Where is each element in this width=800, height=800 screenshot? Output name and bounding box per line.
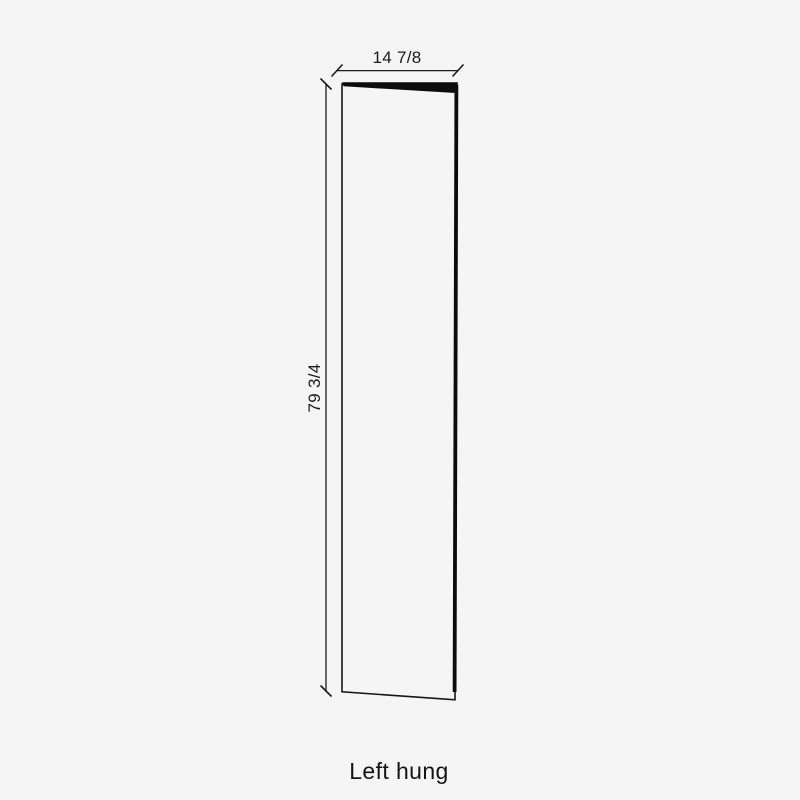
diagram-caption: Left hung: [349, 758, 449, 784]
door-face: [342, 84, 457, 700]
door-elevation-diagram: 14 7/8 79 3/4 Left hung: [0, 0, 800, 800]
door-hinge-free-edge: [455, 85, 457, 693]
door-panel: [342, 82, 458, 700]
width-dimension-label: 14 7/8: [372, 48, 421, 67]
door-diagram-canvas: 14 7/8 79 3/4 Left hung: [0, 0, 800, 800]
height-dimension-label: 79 3/4: [305, 363, 324, 412]
